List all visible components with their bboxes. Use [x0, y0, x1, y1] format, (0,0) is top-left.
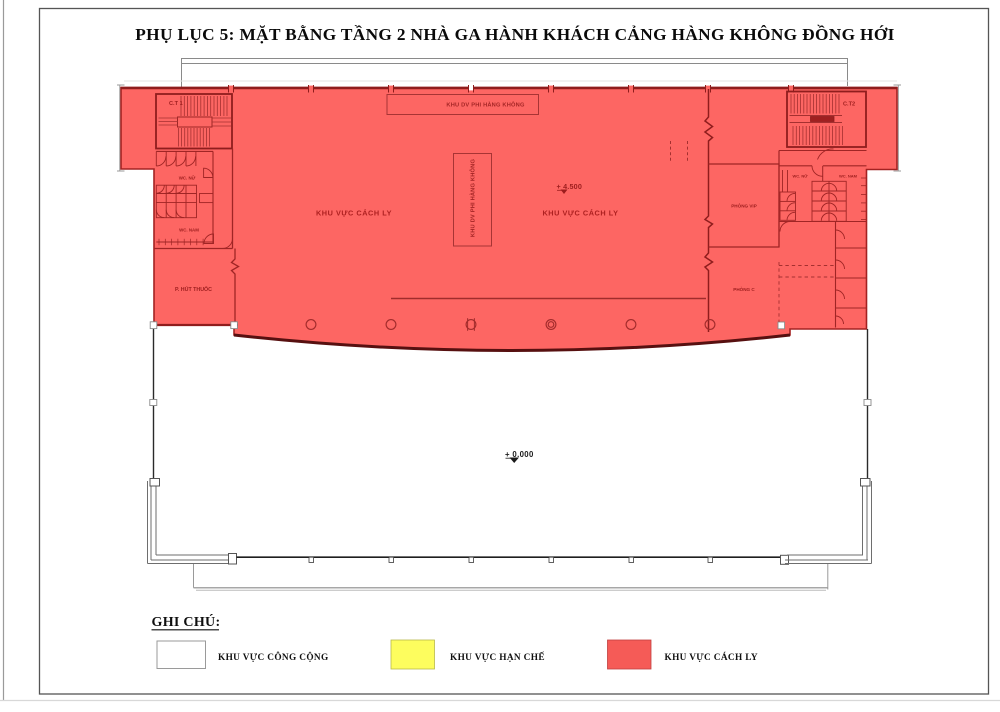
svg-text:KHU VỰC CÁCH LY: KHU VỰC CÁCH LY — [542, 209, 618, 218]
svg-text:KHU DV PHI HÀNG KHÔNG: KHU DV PHI HÀNG KHÔNG — [446, 101, 525, 109]
svg-text:WC. NAM: WC. NAM — [839, 174, 858, 179]
svg-text:C.T 1: C.T 1 — [169, 101, 183, 107]
svg-text:KHU VỰC CÁCH LY: KHU VỰC CÁCH LY — [316, 209, 392, 218]
svg-text:PHÒNG C: PHÒNG C — [733, 285, 755, 292]
svg-text:WC. NỮ: WC. NỮ — [179, 176, 196, 181]
svg-text:GHI CHÚ:: GHI CHÚ: — [152, 613, 221, 630]
svg-text:P. HÚT THUỐC: P. HÚT THUỐC — [175, 286, 212, 293]
svg-text:PHỤ LỤC 5: MẶT BẰNG TẦNG 2 NHÀ: PHỤ LỤC 5: MẶT BẰNG TẦNG 2 NHÀ GA HÀNH K… — [135, 24, 894, 44]
svg-text:C.T2: C.T2 — [843, 102, 855, 108]
svg-text:WC. NAM: WC. NAM — [179, 228, 199, 233]
svg-text:WC. NỮ: WC. NỮ — [792, 174, 808, 179]
svg-text:+ 0.000: + 0.000 — [505, 450, 534, 459]
svg-text:KHU DV PHI HÀNG KHÔNG: KHU DV PHI HÀNG KHÔNG — [469, 159, 477, 238]
svg-text:KHU VỰC CÁCH LY: KHU VỰC CÁCH LY — [665, 651, 759, 663]
svg-text:+ 4.500: + 4.500 — [557, 182, 583, 191]
svg-text:PHÒNG VIP: PHÒNG VIP — [731, 202, 757, 209]
